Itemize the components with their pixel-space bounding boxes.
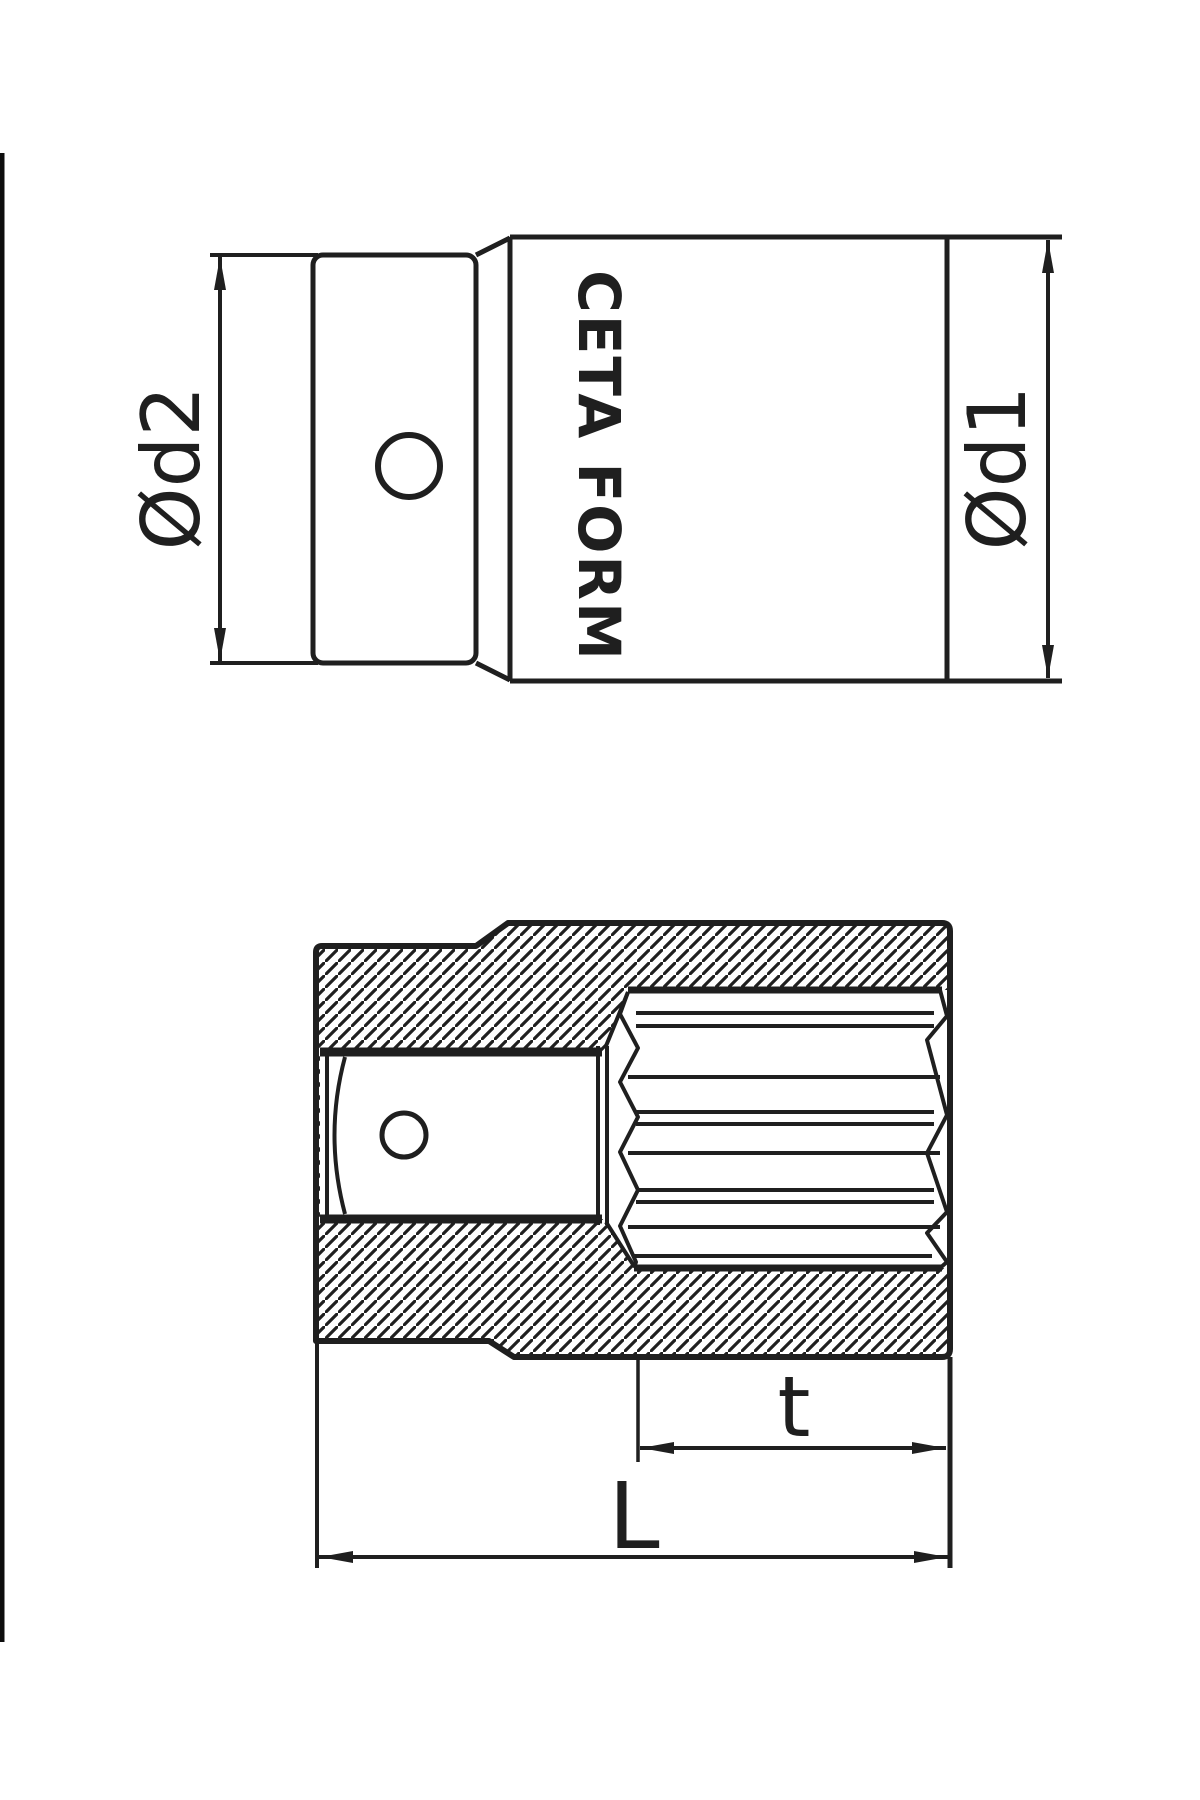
brand-text: CETA FORM [565,270,633,662]
dimension-t: t [638,1357,950,1568]
dim-d2-arrow-down-icon [214,628,226,661]
pin-hole-side-view [378,435,440,497]
left-edge-artifact-bar [0,153,5,1642]
drive-cavity-relief-arc [335,1057,346,1214]
dim-L-arrow-left-icon [320,1551,353,1563]
side-view-chamfer-top [476,238,510,255]
dim-t-arrow-right-icon [912,1442,945,1454]
pin-hole-section-view [382,1113,426,1157]
dim-d2-label: Ød2 [125,386,218,551]
side-view: CETA FORM Ød2 Ød1 [125,237,1062,681]
dimension-d2: Ød2 [125,255,318,663]
dim-d1-label: Ød1 [951,386,1044,551]
dim-t-arrow-left-icon [641,1442,674,1454]
socket-technical-drawing: CETA FORM Ød2 Ød1 [0,0,1200,1800]
dim-d1-arrow-down-icon [1042,645,1054,678]
dim-d2-arrow-up-icon [214,257,226,290]
dimension-d1: Ød1 [951,240,1054,678]
spline-tooth-lines [628,1013,940,1256]
side-view-drive-end [313,255,476,663]
dimension-L: L [317,1341,948,1570]
dim-t-label: t [778,1358,811,1456]
dim-L-label: L [608,1463,659,1570]
dim-L-arrow-right-icon [914,1551,947,1563]
dim-d1-arrow-up-icon [1042,240,1054,273]
technical-drawing-page: CETA FORM Ød2 Ød1 [0,0,1200,1800]
spline-cavity [620,990,947,1268]
section-view: t L [316,923,950,1570]
side-view-chamfer-bottom [476,663,510,680]
